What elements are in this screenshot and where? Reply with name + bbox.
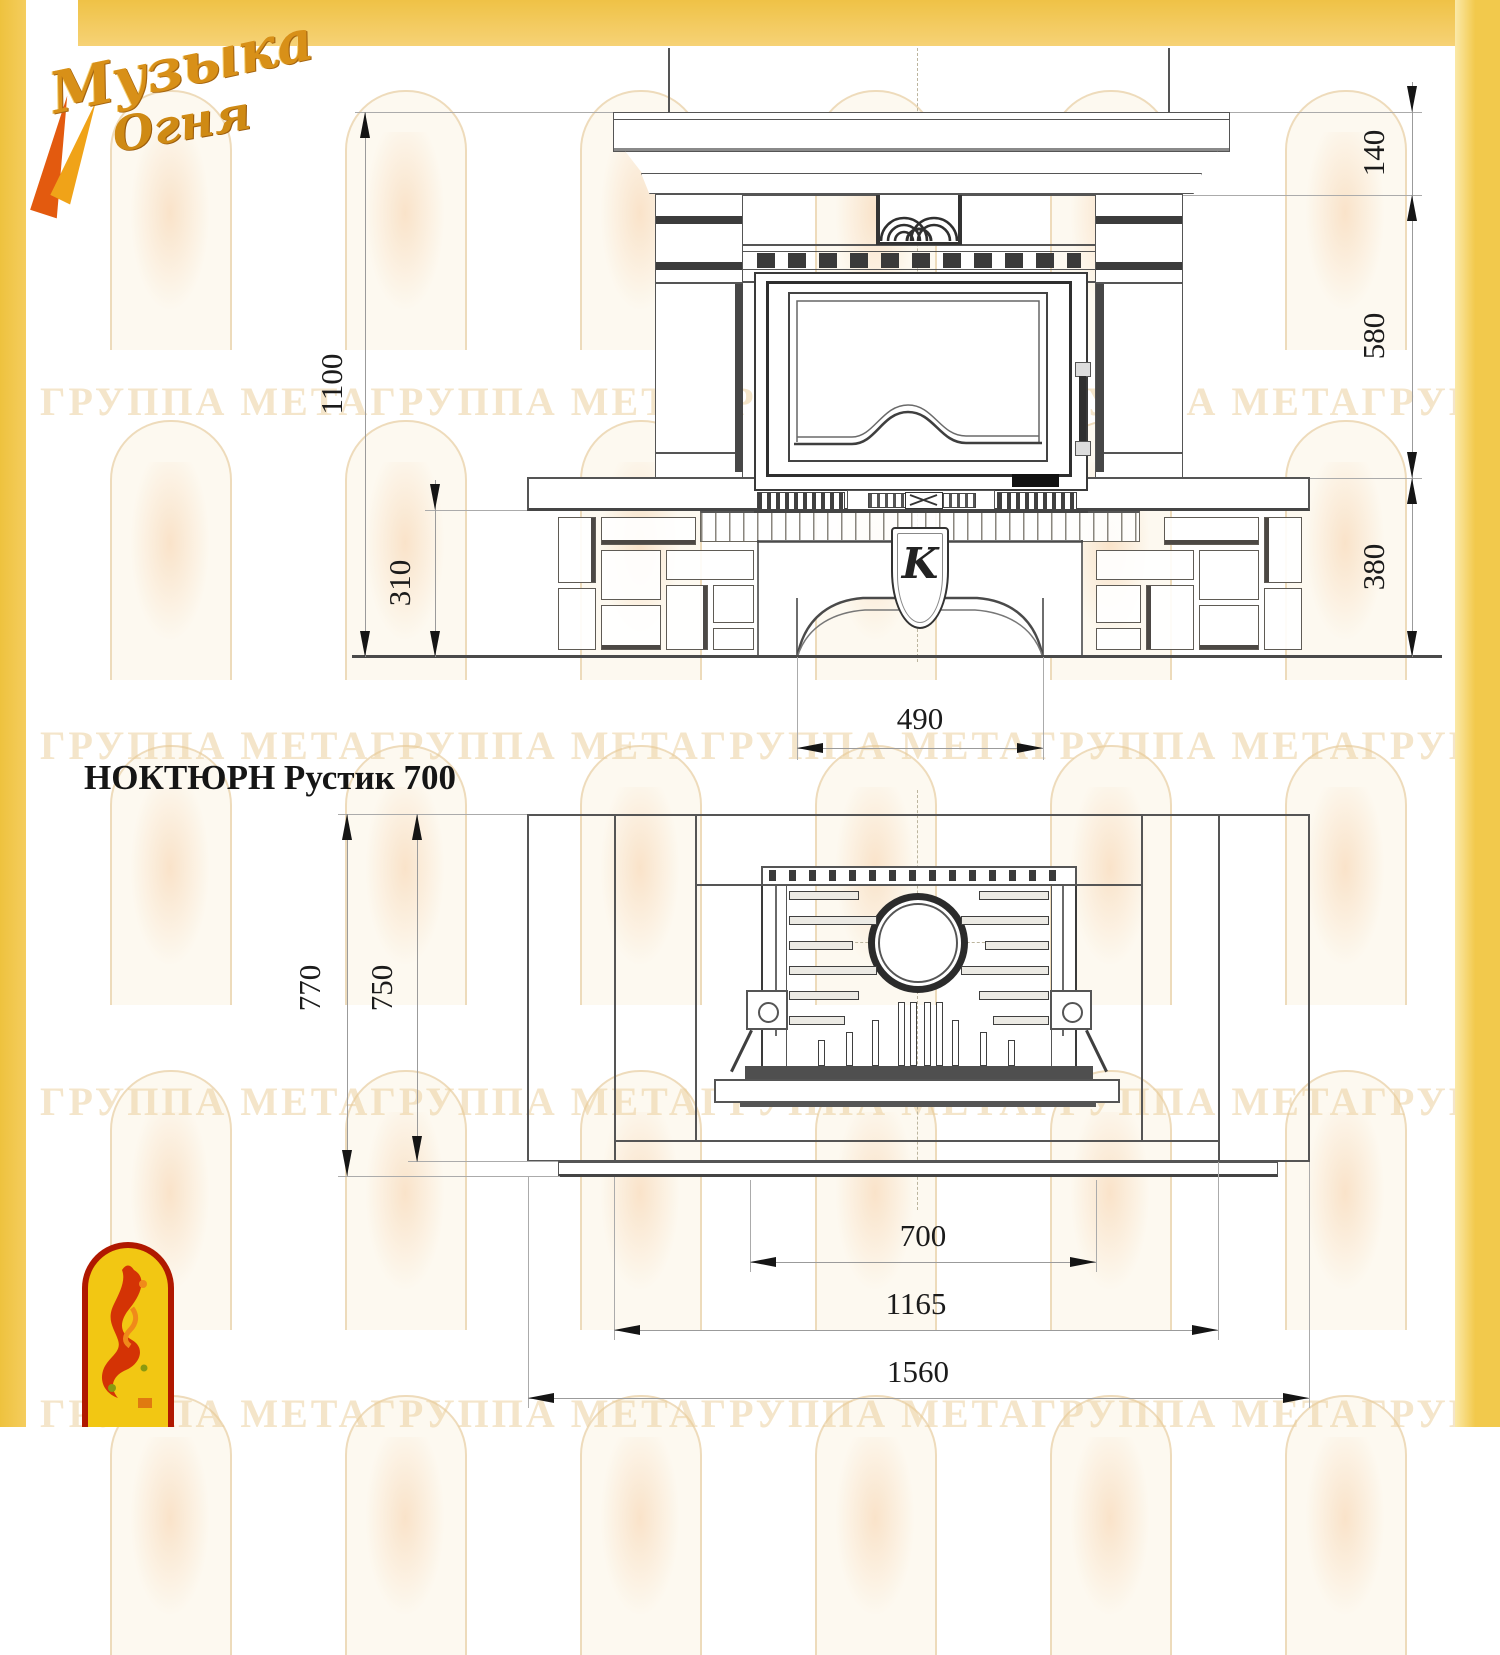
plan-front-face	[614, 1140, 1218, 1142]
extension-line	[408, 1161, 558, 1162]
plan-inner-wall-left	[614, 814, 616, 1162]
grate-post	[1008, 1040, 1015, 1066]
arch-window-logo	[82, 1242, 174, 1427]
dim-total-width: 1560	[858, 1356, 978, 1388]
extension-line	[338, 1176, 560, 1177]
dim-arrow	[1070, 1257, 1096, 1267]
dim-insert-width: 700	[863, 1220, 983, 1252]
dim-arrow	[1407, 195, 1417, 221]
dim-mantel-height: 140	[1358, 93, 1390, 213]
insert-front-bar	[745, 1066, 1093, 1079]
dim-base-height: 380	[1358, 507, 1390, 627]
grate-rib	[961, 916, 1049, 925]
brand-logo: Музыка Огня	[20, 5, 270, 230]
extension-line	[338, 814, 527, 815]
flue-collar-inner-circle	[878, 903, 958, 983]
column-left	[655, 194, 743, 479]
keystone-letter: K	[893, 529, 947, 599]
grate-post	[846, 1032, 853, 1066]
plan-left-edge	[527, 814, 529, 1162]
insert-teeth	[769, 870, 1069, 881]
dim-arrow	[1407, 86, 1417, 112]
extension-line	[1043, 657, 1044, 760]
insert-right-rail	[1051, 866, 1077, 1066]
dim-opening-width: 490	[860, 703, 980, 735]
fan-ornament	[876, 195, 962, 245]
dim-arrow	[528, 1393, 554, 1403]
extension-line	[528, 1177, 529, 1408]
dim-arrow	[1407, 452, 1417, 478]
watermark-arch	[580, 745, 702, 1005]
mantel-molding	[625, 151, 1218, 174]
grate-post	[980, 1032, 987, 1066]
door-handle-bracket	[1075, 441, 1091, 456]
grate-rib	[985, 941, 1049, 950]
plan-front-curb	[558, 1162, 1278, 1177]
flame-figure-icon	[88, 1248, 168, 1421]
glass-wave	[790, 294, 1046, 460]
grate-rib	[789, 916, 877, 925]
door-handle-bracket	[1075, 362, 1091, 377]
dim-arrow	[614, 1325, 640, 1335]
grille-right	[997, 492, 1077, 510]
grate-rib	[979, 891, 1049, 900]
column-right-joint	[1096, 452, 1183, 454]
grate-post	[898, 1002, 905, 1066]
column-left-joint	[656, 452, 743, 454]
dim-arrow	[342, 814, 352, 840]
dim-arrow	[430, 631, 440, 657]
dim-total-height: 1100	[316, 324, 348, 444]
plan-niche-back-left	[695, 884, 763, 886]
page-border-right	[1455, 0, 1500, 1427]
extension-line	[1310, 478, 1422, 479]
plan-inner-wall-right	[1218, 814, 1220, 1162]
watermark-arch	[110, 420, 232, 680]
stonework-left	[553, 511, 758, 657]
dim-arrow	[360, 112, 370, 138]
dim-arrow	[430, 484, 440, 510]
grate-rib	[789, 891, 859, 900]
mantel-molding-lower	[641, 173, 1202, 194]
column-right-stripe	[1096, 216, 1182, 224]
grate-rib	[993, 1016, 1049, 1025]
extension-line	[355, 112, 613, 113]
plan-niche-wall-right	[1141, 814, 1143, 1140]
grate-rib	[789, 966, 877, 975]
column-left-joint	[656, 282, 743, 284]
column-right-stripe	[1096, 262, 1182, 270]
extension-line	[1096, 1180, 1097, 1272]
grate-post	[818, 1040, 825, 1066]
extension-line	[614, 1177, 615, 1340]
watermark-text-row: ГРУППА МЕТАГРУППА МЕТАГРУППА МЕТАГРУППА …	[40, 378, 1460, 425]
dim-arrow	[1283, 1393, 1309, 1403]
door-handle	[1079, 376, 1086, 443]
grate-rib	[789, 991, 859, 1000]
dim-arrow	[1407, 478, 1417, 504]
plan-niche-wall-left	[695, 814, 697, 1140]
hearth-plate-shadow	[740, 1103, 1096, 1107]
dim-plinth-height: 310	[384, 523, 416, 643]
column-left-stripe	[656, 262, 742, 270]
extension-line	[1218, 1162, 1219, 1340]
chimney-line-left	[668, 48, 670, 112]
fan-ornament-arcs	[880, 195, 958, 242]
dim-arrow	[412, 1136, 422, 1162]
column-right-joint	[1096, 282, 1183, 284]
grate-post	[936, 1002, 943, 1066]
dim-arrow	[412, 814, 422, 840]
extension-line	[425, 510, 527, 511]
dim-line-490	[797, 748, 1043, 749]
grate-rib	[979, 991, 1049, 1000]
dim-line-1165	[614, 1330, 1218, 1331]
dim-arrow	[1407, 631, 1417, 657]
dim-total-depth: 770	[294, 928, 326, 1048]
plan-centerline	[917, 790, 918, 1210]
watermark-arch	[1285, 745, 1407, 1005]
grate-rib	[789, 1016, 845, 1025]
page-title: НОКТЮРН Рустик 700	[84, 758, 456, 798]
grate-rib	[961, 966, 1049, 975]
dim-line-right-chain	[1412, 82, 1413, 657]
dim-line-700	[750, 1262, 1096, 1263]
stonework-right	[1082, 511, 1307, 657]
grate-rib	[789, 941, 853, 950]
lintel-dash-band	[757, 253, 1081, 268]
insert-foot-left-pin	[758, 1002, 779, 1023]
dim-arrow	[797, 743, 823, 753]
column-right-inner-shadow	[1096, 284, 1104, 472]
dim-line-770	[347, 814, 348, 1176]
dim-arrow	[1192, 1325, 1218, 1335]
extension-line	[1230, 112, 1422, 113]
hearth-plate	[714, 1079, 1120, 1103]
mantel-band	[613, 119, 1230, 152]
dim-firebox-zone-height: 580	[1358, 276, 1390, 396]
dim-arrow	[360, 631, 370, 657]
column-left-inner-shadow	[735, 284, 743, 472]
insert-foot-right-pin	[1062, 1002, 1083, 1023]
grate-post	[924, 1002, 931, 1066]
grate-post	[952, 1020, 959, 1066]
grille-center-emblem	[905, 492, 943, 509]
dim-arrow	[1017, 743, 1043, 753]
plan-right-edge	[1308, 814, 1310, 1162]
grate-post	[910, 1002, 917, 1066]
dim-body-depth: 750	[366, 928, 398, 1048]
dim-arrow	[342, 1150, 352, 1176]
dim-body-width: 1165	[856, 1288, 976, 1320]
column-left-stripe	[656, 216, 742, 224]
dim-arrow	[750, 1257, 776, 1267]
column-right	[1095, 194, 1183, 479]
extension-line	[1309, 1162, 1310, 1408]
plan-back-edge	[527, 814, 1310, 816]
dim-line-1560	[528, 1398, 1309, 1399]
lintel-line	[743, 269, 1095, 270]
insert-left-rail	[761, 866, 787, 1066]
dim-line-1100	[365, 112, 366, 657]
plan-niche-back-right	[1073, 884, 1141, 886]
grille-left	[757, 492, 845, 510]
grate-post	[872, 1020, 879, 1066]
floor-line	[352, 655, 1442, 658]
door-vent	[1012, 474, 1059, 487]
chimney-line-right	[1168, 48, 1170, 112]
lintel-line	[743, 251, 1095, 252]
dim-line-750	[417, 814, 418, 1162]
firebox-door-glass	[788, 292, 1048, 462]
